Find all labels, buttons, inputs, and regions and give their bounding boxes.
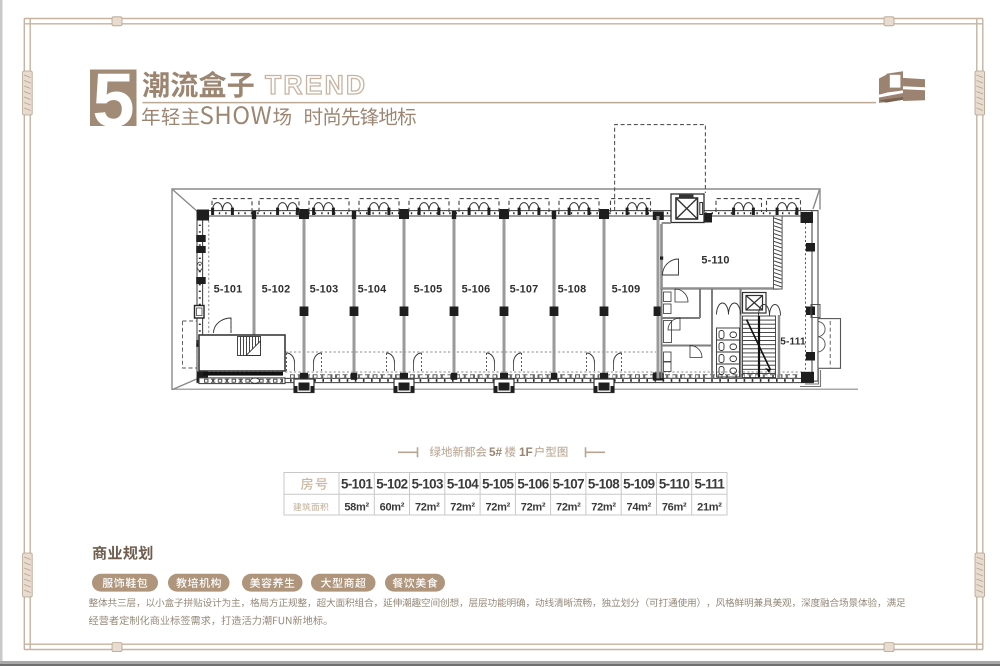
svg-text:74m²: 74m² [627,502,652,514]
svg-text:5-109: 5-109 [623,477,654,492]
svg-text:5-108: 5-108 [558,284,587,296]
svg-text:5-103: 5-103 [310,284,339,296]
svg-text:5-107: 5-107 [553,477,584,492]
svg-text:5-105: 5-105 [482,477,514,492]
svg-text:5-104: 5-104 [358,284,387,296]
svg-text:1F: 1F [519,445,533,459]
svg-text:76m²: 76m² [662,502,687,514]
svg-text:5-101: 5-101 [341,477,373,492]
svg-text:5-103: 5-103 [412,477,443,492]
svg-text:TREND: TREND [265,70,367,100]
svg-text:21m²: 21m² [697,502,722,514]
svg-text:5-106: 5-106 [517,477,548,492]
svg-text:72m²: 72m² [485,502,510,514]
svg-text:5-111: 5-111 [780,337,806,348]
svg-text:5-107: 5-107 [510,284,539,296]
svg-text:72m²: 72m² [450,502,475,514]
svg-text:5-102: 5-102 [262,284,291,296]
svg-text:72m²: 72m² [521,502,546,514]
svg-text:58m²: 58m² [344,502,369,514]
svg-text:5-109: 5-109 [612,284,641,296]
svg-text:5-110: 5-110 [701,255,729,267]
svg-text:5-102: 5-102 [376,477,407,492]
svg-text:72m²: 72m² [556,502,581,514]
svg-text:60m²: 60m² [380,502,405,514]
svg-text:5-108: 5-108 [588,477,620,492]
svg-text:72m²: 72m² [415,502,440,514]
svg-text:5-106: 5-106 [462,284,491,296]
svg-text:72m²: 72m² [591,502,616,514]
svg-text:5: 5 [92,59,134,144]
svg-text:5-110: 5-110 [659,477,690,492]
svg-text:5-104: 5-104 [447,477,479,492]
svg-text:5-105: 5-105 [414,284,443,296]
svg-text:5-111: 5-111 [695,477,726,492]
svg-text:5-101: 5-101 [214,284,243,296]
svg-text:5#: 5# [489,445,503,459]
